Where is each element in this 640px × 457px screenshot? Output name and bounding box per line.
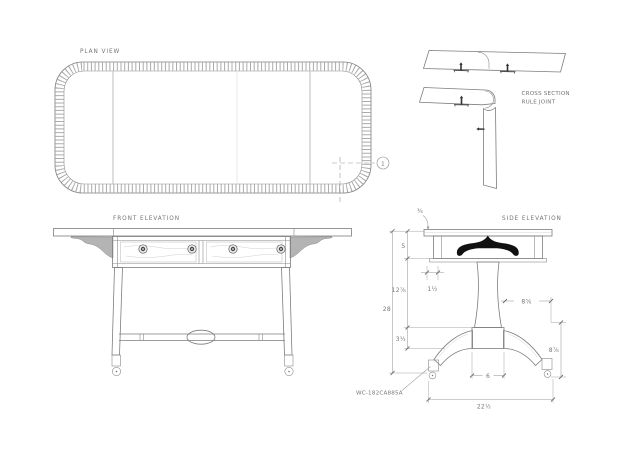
drawer-left <box>121 242 197 262</box>
hinge-icon <box>454 62 470 72</box>
leaf-bracket-left <box>71 237 113 258</box>
drawer-knob <box>277 245 285 253</box>
drawing-sheet: PLAN VIEW 1 <box>0 0 640 457</box>
saber-leg-left <box>434 331 473 366</box>
drawer-knob <box>229 245 237 253</box>
dim-overall-height: 28 <box>383 306 391 313</box>
section-leaf-up <box>424 51 566 73</box>
dim-top-thickness: ¾ <box>417 208 423 215</box>
side-elevation-label: SIDE ELEVATION <box>502 216 562 222</box>
side-tabletop <box>424 230 552 237</box>
dim-pedestal-height: 12⅞ <box>392 287 406 294</box>
hinge-icon <box>454 96 469 107</box>
pedestal-base <box>472 328 504 349</box>
saber-leg-right <box>504 331 543 366</box>
caster-cup-right <box>285 355 294 366</box>
front-elevation-label: FRONT ELEVATION <box>113 216 180 222</box>
part-number: WC-182CA885A <box>356 391 403 397</box>
edge-band-hatch <box>60 67 367 189</box>
part-number-leader <box>402 367 431 391</box>
pedestal-column <box>475 262 502 328</box>
drawer-knob <box>139 245 147 253</box>
dim-base-width: 6 <box>486 373 490 380</box>
rule-joint-arc-up <box>478 52 489 69</box>
technical-drawing: PLAN VIEW 1 <box>0 0 640 457</box>
cross-section-detail: CROSS SECTION RULE JOINT <box>420 51 570 189</box>
detail-marker-number: 1 <box>381 161 385 167</box>
leaf-support-silhouette <box>457 236 519 256</box>
tabletop-outline <box>55 62 371 193</box>
section-fixed-top <box>420 88 496 105</box>
section-label-line1: CROSS SECTION <box>522 91 570 97</box>
dim-apron-height: 5 <box>401 243 405 250</box>
dim-base-height: 3½ <box>396 336 406 343</box>
section-dropped-leaf <box>484 108 497 189</box>
dim-leg-height: 8⅞ <box>549 347 559 354</box>
drawer-knob <box>188 245 196 253</box>
caster-cup-left <box>429 360 439 371</box>
front-leg-right <box>282 268 293 356</box>
front-tabletop <box>54 229 352 237</box>
drawer-right <box>207 242 283 262</box>
tabletop-grain <box>64 71 362 184</box>
dim-leg-spread: 8⅝ <box>521 299 531 306</box>
plan-view-drawing: PLAN VIEW 1 <box>55 49 389 203</box>
leaf-bracket-right <box>290 237 332 258</box>
front-leg-left <box>112 268 123 356</box>
apron-molding <box>430 259 547 263</box>
front-elevation-drawing: FRONT ELEVATION <box>54 216 352 376</box>
hinge-icon <box>500 63 516 73</box>
caster-cup-left <box>112 355 121 366</box>
section-label-line2: RULE JOINT <box>522 100 556 106</box>
dim-apron-thickness: 1½ <box>427 286 437 293</box>
dim-overall-depth: 22½ <box>477 404 491 411</box>
drawer-case <box>113 237 291 268</box>
stretcher-medallion <box>187 330 215 344</box>
side-elevation-drawing: SIDE ELEVATION <box>356 208 566 411</box>
caster-cup-right <box>542 359 552 370</box>
plan-view-label: PLAN VIEW <box>80 49 120 55</box>
rule-joint-arc-down <box>485 91 494 108</box>
